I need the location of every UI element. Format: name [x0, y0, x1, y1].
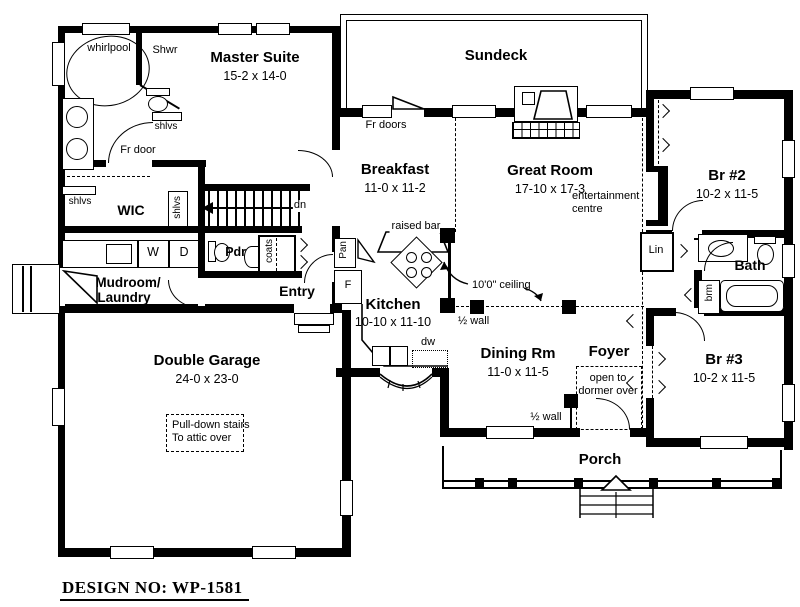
design-number: DESIGN NO: WP-1581: [60, 578, 249, 601]
porch-steps: [0, 0, 800, 607]
floor-plan: Sundeck: [0, 0, 800, 607]
